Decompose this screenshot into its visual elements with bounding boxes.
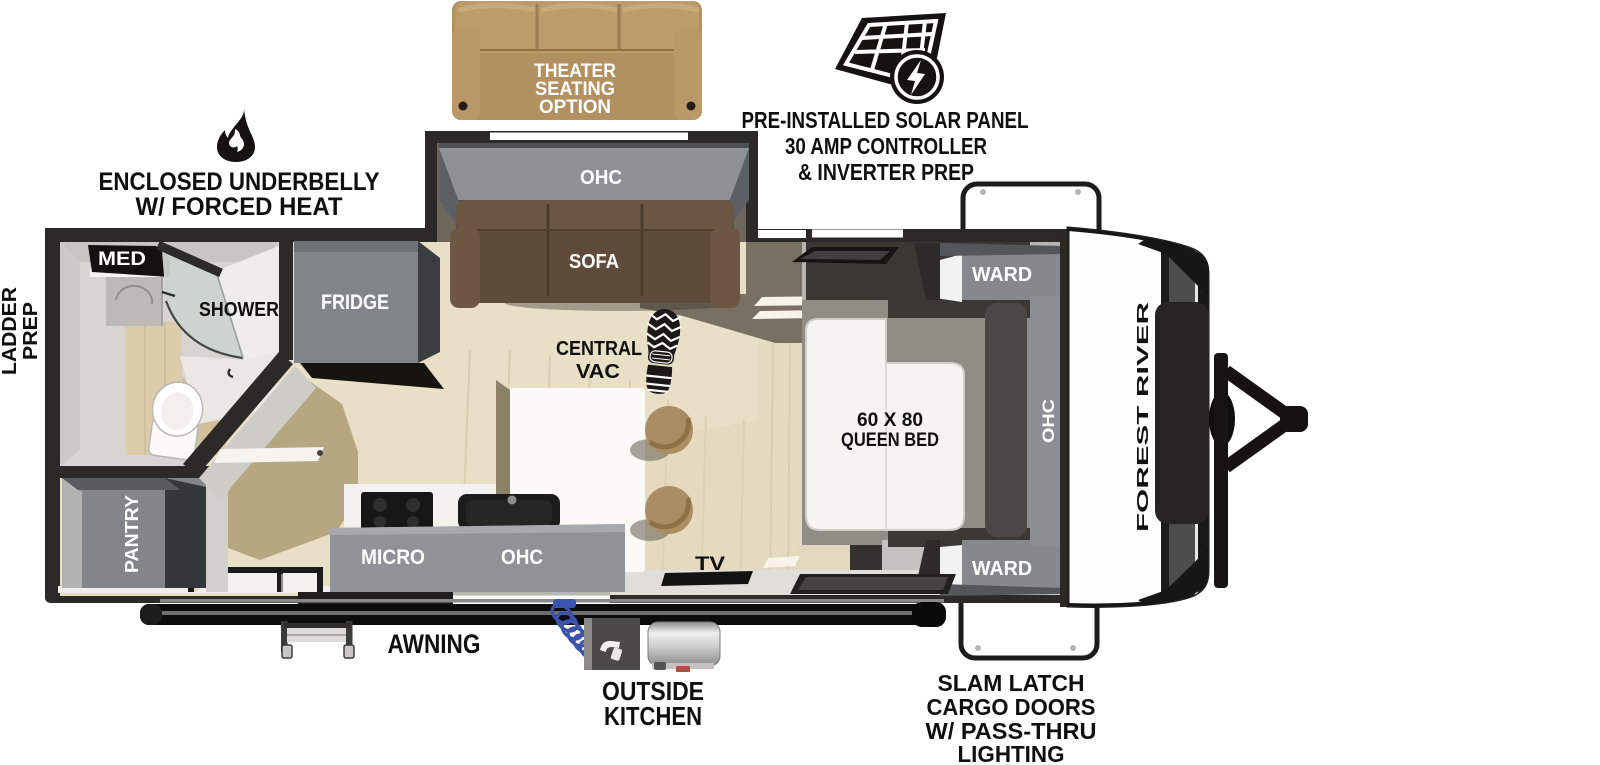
svg-text:WARD: WARD — [972, 558, 1032, 580]
svg-text:LADDER: LADDER — [0, 286, 21, 375]
svg-text:LIGHTING: LIGHTING — [958, 741, 1065, 765]
svg-text:PANTRY: PANTRY — [122, 495, 142, 573]
svg-text:OHC: OHC — [580, 167, 622, 189]
svg-text:FRIDGE: FRIDGE — [321, 291, 389, 314]
svg-text:W/ FORCED HEAT: W/ FORCED HEAT — [136, 193, 343, 221]
svg-text:& INVERTER PREP: & INVERTER PREP — [798, 159, 974, 185]
svg-text:KITCHEN: KITCHEN — [604, 701, 702, 731]
svg-text:OHC: OHC — [1039, 399, 1058, 443]
svg-text:TV: TV — [695, 554, 725, 575]
svg-text:MICRO: MICRO — [361, 546, 425, 569]
svg-text:OPTION: OPTION — [539, 97, 611, 118]
svg-text:SLAM LATCH: SLAM LATCH — [938, 670, 1085, 696]
svg-text:30 AMP CONTROLLER: 30 AMP CONTROLLER — [785, 133, 987, 159]
svg-text:FOREST RIVER: FOREST RIVER — [1135, 301, 1152, 532]
svg-text:AWNING: AWNING — [388, 629, 481, 659]
svg-text:60 X 80: 60 X 80 — [857, 410, 923, 431]
svg-text:CENTRAL: CENTRAL — [556, 338, 642, 360]
svg-text:ENCLOSED UNDERBELLY: ENCLOSED UNDERBELLY — [99, 168, 380, 196]
svg-text:PRE-INSTALLED SOLAR PANEL: PRE-INSTALLED SOLAR PANEL — [742, 107, 1029, 133]
svg-text:SHOWER: SHOWER — [199, 299, 279, 321]
svg-text:MED: MED — [98, 249, 146, 270]
svg-text:CARGO DOORS: CARGO DOORS — [927, 694, 1096, 720]
svg-text:SOFA: SOFA — [569, 251, 619, 273]
svg-text:OHC: OHC — [501, 546, 543, 569]
svg-text:QUEEN BED: QUEEN BED — [841, 430, 939, 451]
svg-text:PREP: PREP — [20, 302, 42, 360]
svg-text:WARD: WARD — [972, 264, 1032, 286]
svg-text:VAC: VAC — [576, 361, 620, 383]
